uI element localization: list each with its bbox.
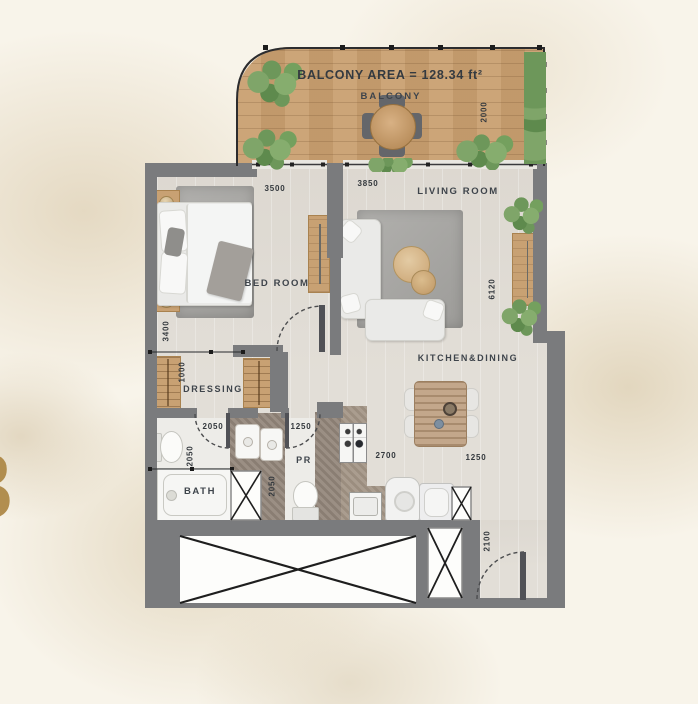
wall-service-block <box>145 520 480 608</box>
wall-bath-top <box>145 408 197 418</box>
pr-toilet-tank <box>292 507 319 521</box>
fridge <box>419 483 454 522</box>
dim-pr-width: 1250 <box>273 422 329 431</box>
dim-dressing-depth: 1000 <box>178 362 187 383</box>
living-room-label: LIVING ROOM <box>378 186 538 197</box>
coffee-table-small <box>411 270 436 295</box>
washing-machine <box>385 477 420 522</box>
wall-right-lower <box>547 339 565 608</box>
pr-toilet <box>293 481 318 510</box>
bedroom-label: BED ROOM <box>197 278 357 289</box>
plant-icon <box>366 158 414 172</box>
balcony-table <box>370 104 416 150</box>
wall-partition-upper <box>327 163 343 258</box>
wall-partition-lower <box>330 258 341 355</box>
bath-toilet <box>160 431 183 463</box>
dim-bath-width: 2050 <box>185 422 241 431</box>
kitchen-dining-label: KITCHEN&DINING <box>388 353 548 363</box>
plant-icon <box>454 134 514 170</box>
dining-table <box>414 381 467 447</box>
plant-icon <box>241 128 297 170</box>
wall-bath-top-stub <box>228 408 258 418</box>
dressing-label: DRESSING <box>133 384 293 394</box>
unit-number-fragment: 3 <box>0 430 13 542</box>
plant-icon <box>503 195 543 235</box>
dim-bedroom-width: 3500 <box>247 184 303 193</box>
wall-pr-jamb <box>281 408 289 418</box>
plant-icon <box>501 297 541 337</box>
bed-pillow <box>159 251 189 295</box>
balcony-area-label: BALCONY AREA = 128.34 ft² <box>240 68 540 82</box>
wardrobe <box>243 358 272 408</box>
dim-bedroom-depth: 3400 <box>162 321 171 342</box>
bath-label: BATH <box>120 486 280 497</box>
dim-kitchen-passage: 1250 <box>448 453 504 462</box>
dim-entry-height: 2100 <box>483 531 492 552</box>
kitchen-sink <box>349 492 382 521</box>
dim-kitchen-width: 2700 <box>358 451 414 460</box>
dim-bath-depth: 2050 <box>186 446 195 467</box>
balcony-label: BALCONY <box>291 91 491 102</box>
wall-entry-bottom <box>480 598 565 608</box>
dim-living-depth: 6120 <box>488 279 497 300</box>
wall-dressing-right <box>270 352 288 412</box>
dim-balcony-depth: 2000 <box>480 102 489 123</box>
floorplan-canvas: 3 <box>0 0 698 704</box>
wall-kitchen-stub <box>317 402 343 418</box>
